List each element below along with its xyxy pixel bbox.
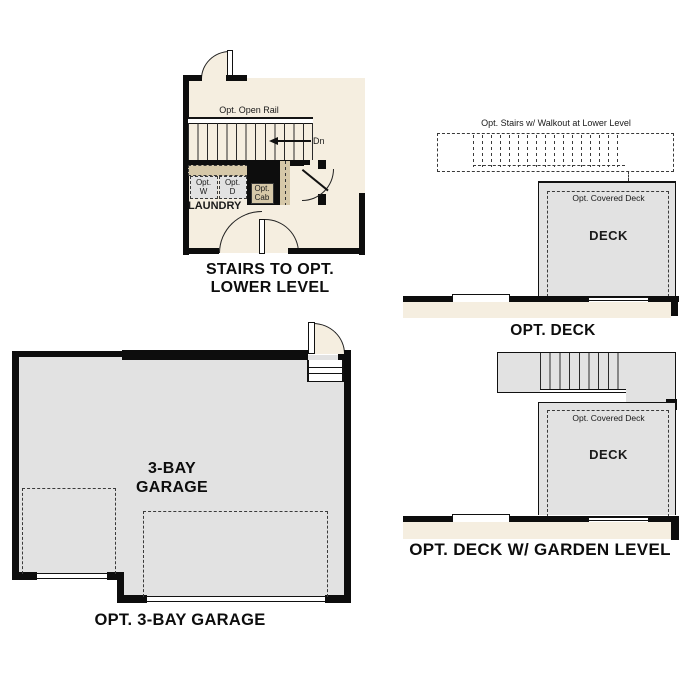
bay-outline: [22, 488, 116, 574]
covered-deck-outline: [547, 410, 669, 517]
wall: [12, 351, 122, 357]
floorplan-sheet: Opt. Open Rail Dn Opt. W Opt. D LAUNDRY …: [0, 0, 687, 687]
covered-deck-label: Opt. Covered Deck: [540, 413, 677, 423]
door-leaf: [308, 322, 315, 354]
dn-label: Dn: [313, 136, 325, 146]
covered-deck-label: Opt. Covered Deck: [540, 193, 677, 203]
dryer-label: Opt. D: [219, 179, 246, 196]
garage-room-label: 3-BAY GARAGE: [97, 459, 247, 497]
washer-label: Opt. W: [190, 179, 217, 196]
deck-label: DECK: [540, 231, 677, 241]
wall: [344, 350, 351, 603]
open-rail-label: Opt. Open Rail: [186, 105, 312, 115]
plan-title: OPT. DECK: [453, 322, 653, 340]
wall: [183, 248, 219, 254]
wall: [671, 300, 678, 316]
cabinet-strip: [280, 161, 290, 205]
dn-arrow-line: [278, 140, 311, 142]
wall: [288, 248, 365, 254]
door-swing-arc: [313, 323, 345, 354]
interior-strip: [403, 522, 671, 539]
wall: [226, 75, 247, 81]
opt-stairs-line: [473, 165, 625, 166]
wall: [122, 350, 308, 360]
plan-title: OPT. DECK W/ GARDEN LEVEL: [375, 541, 687, 559]
wall: [318, 160, 326, 169]
plan-title: OPT. 3-BAY GARAGE: [55, 611, 305, 629]
deck-upper-run: [626, 352, 676, 405]
deck-stair-treads: [540, 353, 626, 390]
laundry-counter: [188, 165, 248, 176]
opt-cab-label: Opt. Cab: [250, 185, 274, 202]
wall: [671, 519, 679, 540]
stair-deck-connector: [628, 171, 629, 181]
plan-title: STAIRS TO OPT. LOWER LEVEL: [170, 261, 370, 297]
stair-edge-line: [540, 389, 626, 393]
wall: [12, 351, 19, 580]
dn-arrow-head: [269, 137, 278, 145]
wall: [290, 160, 304, 166]
covered-deck-outline: [547, 191, 669, 297]
interior-strip: [403, 302, 671, 318]
wall: [359, 193, 365, 255]
deck-label: DECK: [540, 450, 677, 460]
wall: [325, 595, 346, 603]
opt-stair-treads: [473, 135, 625, 167]
stairs-note-label: Opt. Stairs w/ Walkout at Lower Level: [436, 118, 676, 128]
laundry-label: LAUNDRY: [188, 201, 241, 211]
bay-outline: [143, 511, 328, 597]
stoop-steps: [307, 360, 344, 382]
